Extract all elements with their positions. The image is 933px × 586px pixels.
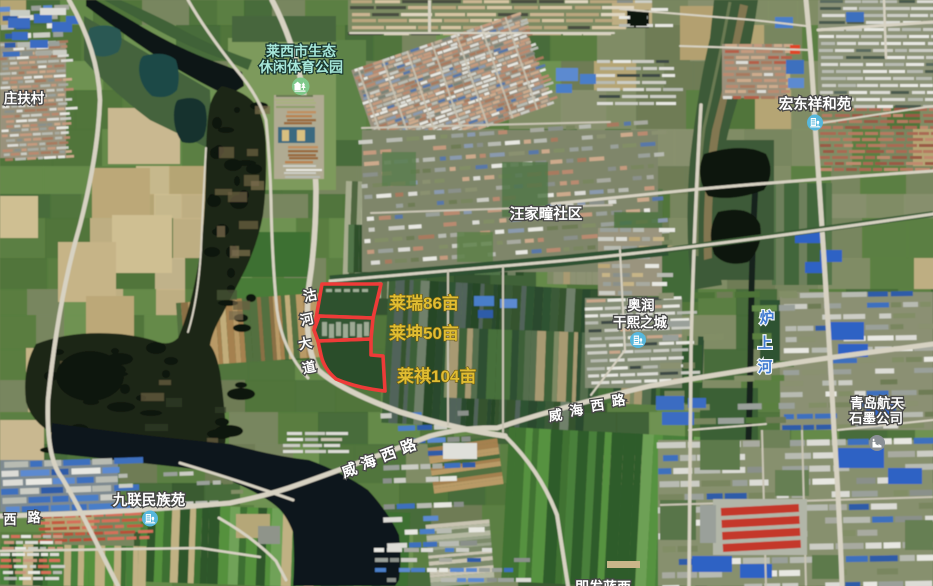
svg-text:西: 西 [3,512,16,527]
svg-text:莱坤50亩: 莱坤50亩 [389,323,459,343]
svg-text:宏东祥和苑: 宏东祥和苑 [779,95,852,113]
svg-text:炉: 炉 [760,309,775,327]
svg-text:威: 威 [548,406,564,424]
svg-text:莱西市生态: 莱西市生态 [266,43,336,59]
svg-text:干熙之城: 干熙之城 [613,314,667,330]
svg-text:汪家疃社区: 汪家疃社区 [510,205,583,223]
svg-text:路: 路 [611,391,627,409]
svg-text:莱祺104亩: 莱祺104亩 [397,366,476,386]
svg-text:休闲体育公园: 休闲体育公园 [258,59,343,75]
svg-text:庄扶村: 庄扶村 [4,90,45,106]
svg-text:九联民族苑: 九联民族苑 [112,491,186,509]
svg-text:路: 路 [27,510,41,525]
svg-text:上: 上 [758,335,773,352]
svg-text:青岛航天: 青岛航天 [850,395,904,411]
svg-text:海: 海 [569,401,585,419]
svg-text:奥润: 奥润 [628,297,655,313]
svg-text:河: 河 [758,358,773,376]
svg-text:莱瑞86亩: 莱瑞86亩 [389,293,459,313]
svg-text:石墨公司: 石墨公司 [848,411,903,426]
svg-text:西: 西 [590,397,605,414]
svg-text:即发蓝西: 即发蓝西 [575,579,631,586]
